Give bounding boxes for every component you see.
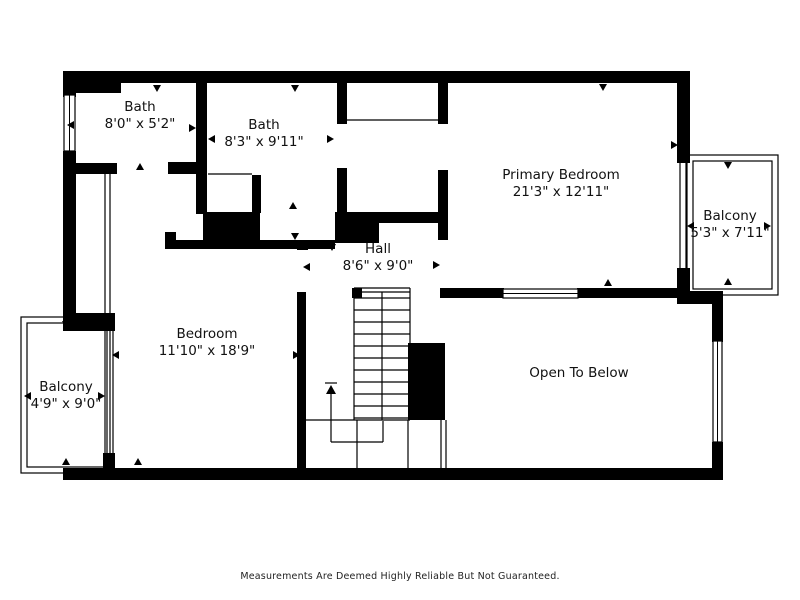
wall-segment: [297, 292, 306, 468]
floorplan-svg: Bath8'0" x 5'2"Bath8'3" x 9'11"Primary B…: [0, 0, 800, 600]
room-dims-bedroom: 11'10" x 18'9": [159, 343, 256, 359]
room-label-hall: Hall: [365, 241, 391, 257]
wall-segment: [337, 83, 347, 124]
wall-segment: [203, 212, 260, 243]
room-label-bedroom: Bedroom: [176, 326, 237, 342]
direction-marker: [289, 202, 297, 209]
wall-segment: [63, 71, 690, 83]
wall-segment: [378, 212, 448, 223]
room-label-balcony-left: Balcony: [39, 379, 93, 395]
stair-direction-arrow: [326, 385, 336, 394]
wall-segment: [712, 302, 723, 342]
room-label-bath-1: Bath: [124, 99, 155, 115]
wall-segment: [252, 175, 261, 213]
room-dims-balcony-right: 5'3" x 7'11": [690, 225, 769, 241]
wall-segment: [103, 453, 115, 470]
direction-marker: [134, 458, 142, 465]
direction-marker: [327, 135, 334, 143]
direction-marker: [136, 163, 144, 170]
direction-marker: [604, 279, 612, 286]
wall-segment: [63, 468, 723, 480]
wall-segment: [577, 288, 690, 298]
room-label-balcony-right: Balcony: [703, 208, 757, 224]
room-label-open-to-below: Open To Below: [529, 365, 628, 381]
wall-segment: [297, 243, 308, 250]
wall-segment: [712, 442, 723, 470]
direction-marker: [153, 85, 161, 92]
direction-marker: [724, 278, 732, 285]
direction-marker: [62, 458, 70, 465]
balcony-outline: [27, 323, 107, 467]
wall-segment: [438, 170, 448, 240]
disclaimer-text: Measurements Are Deemed Highly Reliable …: [0, 571, 800, 582]
wall-segment: [677, 71, 690, 163]
direction-marker: [303, 263, 310, 271]
floorplan-image: Bath8'0" x 5'2"Bath8'3" x 9'11"Primary B…: [0, 0, 800, 600]
wall-segment: [196, 83, 207, 214]
direction-marker: [291, 85, 299, 92]
wall-segment: [408, 343, 445, 420]
direction-marker: [671, 141, 678, 149]
room-dims-bath-2: 8'3" x 9'11": [224, 134, 303, 150]
wall-segment: [438, 83, 448, 124]
room-label-bath-2: Bath: [248, 117, 279, 133]
wall-segment: [337, 168, 347, 214]
wall-segment: [165, 240, 335, 249]
wall-segment: [168, 162, 200, 174]
direction-marker: [291, 233, 299, 240]
direction-marker: [208, 135, 215, 143]
wall-segment: [677, 268, 690, 295]
room-dims-hall: 8'6" x 9'0": [343, 258, 414, 274]
direction-marker: [189, 124, 196, 132]
room-dims-balcony-left: 4'9" x 9'0": [31, 396, 102, 412]
wall-segment: [448, 288, 504, 298]
direction-marker: [433, 261, 440, 269]
wall-segment: [63, 163, 117, 174]
room-dims-primary-bedroom: 21'3" x 12'11": [513, 184, 610, 200]
wall-segment: [335, 212, 379, 243]
wall-segment: [63, 313, 115, 331]
direction-marker: [599, 84, 607, 91]
room-label-primary-bedroom: Primary Bedroom: [502, 167, 620, 183]
wall-segment: [63, 151, 76, 331]
direction-marker: [724, 162, 732, 169]
room-dims-bath-1: 8'0" x 5'2": [105, 116, 176, 132]
